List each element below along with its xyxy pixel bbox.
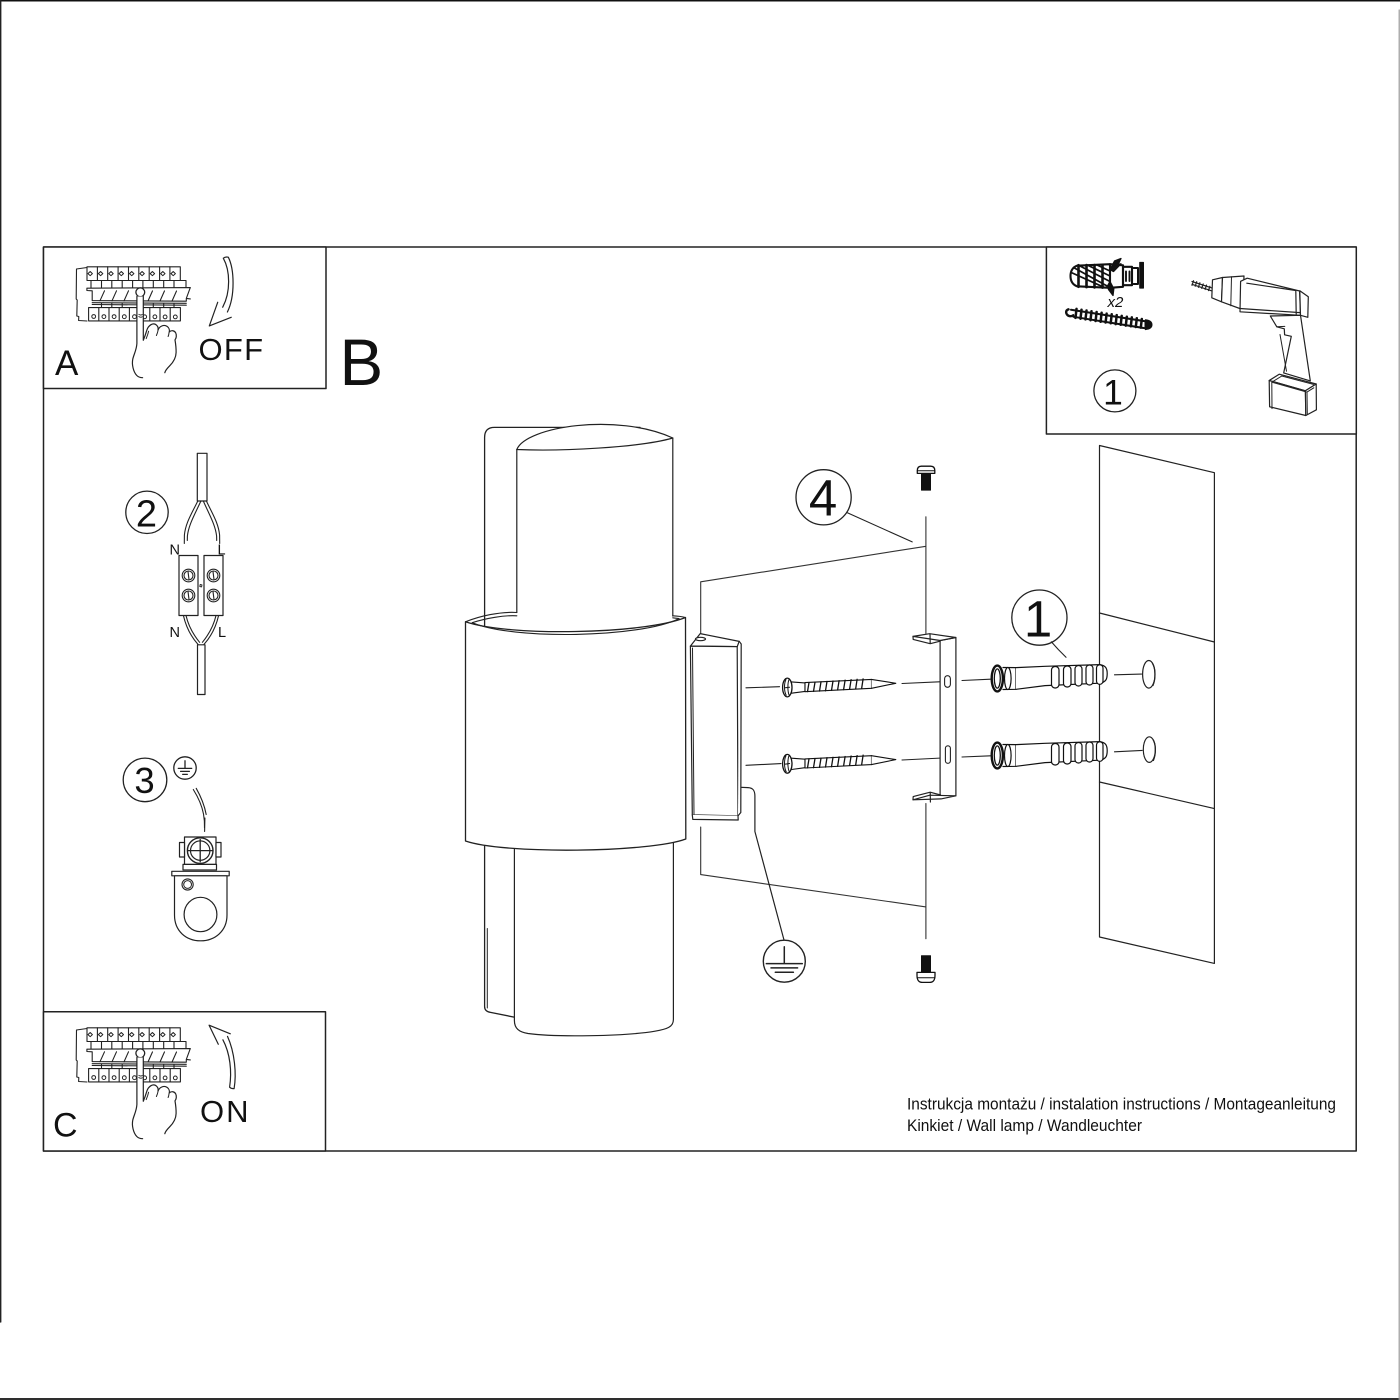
svg-text:A: A bbox=[55, 344, 79, 383]
svg-text:4: 4 bbox=[809, 470, 837, 527]
svg-text:2: 2 bbox=[136, 493, 157, 535]
svg-text:N: N bbox=[170, 625, 180, 641]
svg-text:1: 1 bbox=[1024, 590, 1052, 647]
svg-text:B: B bbox=[340, 326, 384, 399]
svg-text:Kinkiet / Wall lamp / Wandleuc: Kinkiet / Wall lamp / Wandleuchter bbox=[907, 1116, 1142, 1135]
svg-text:L: L bbox=[218, 625, 226, 641]
svg-text:3: 3 bbox=[134, 760, 154, 801]
svg-text:ON: ON bbox=[200, 1094, 251, 1129]
svg-text:Instrukcja montażu / instalati: Instrukcja montażu / instalation instruc… bbox=[907, 1095, 1336, 1114]
svg-text:1: 1 bbox=[1103, 373, 1123, 413]
svg-text:C: C bbox=[53, 1107, 78, 1145]
svg-text:x2: x2 bbox=[1107, 294, 1125, 311]
svg-text:OFF: OFF bbox=[199, 332, 265, 367]
